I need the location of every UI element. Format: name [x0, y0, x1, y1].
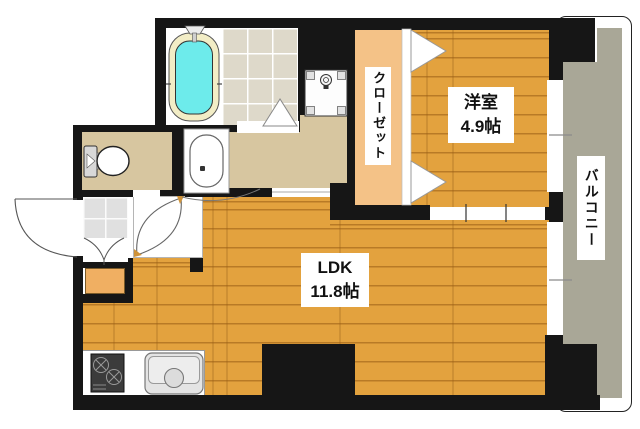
ldk-label: LDK 11.8帖 — [301, 253, 369, 307]
door-hinge-icon — [134, 249, 142, 257]
washbasin — [184, 129, 229, 193]
genkan-step — [84, 238, 124, 265]
shower-door-icon — [263, 99, 297, 126]
fixtures-layer — [0, 0, 640, 429]
toilet — [84, 146, 129, 177]
gas-stove — [91, 354, 124, 392]
closet-label: クローゼット — [365, 67, 391, 165]
folding-closet-door — [402, 29, 446, 205]
sliding-door-ticks — [466, 204, 506, 222]
western-room-label: 洋室 4.9帖 — [448, 87, 514, 143]
bathtub — [166, 26, 222, 121]
laundry-faucet-icon — [321, 75, 332, 86]
western-room-name: 洋室 — [464, 91, 498, 115]
floor-plan: 洋室 4.9帖 LDK 11.8帖 クローゼット バルコニー — [0, 0, 640, 429]
ldk-name: LDK — [318, 256, 353, 280]
washing-machine-pan — [305, 70, 347, 116]
hall-door — [134, 196, 184, 257]
balcony-label: バルコニー — [577, 156, 605, 260]
closet-name: クローゼット — [369, 71, 387, 161]
ldk-size: 11.8帖 — [310, 280, 359, 304]
kitchen-sink — [145, 353, 203, 394]
entrance-door — [15, 199, 77, 257]
balcony-name: バルコニー — [581, 168, 601, 248]
window-tick — [549, 135, 572, 280]
western-room-size: 4.9帖 — [461, 115, 502, 139]
